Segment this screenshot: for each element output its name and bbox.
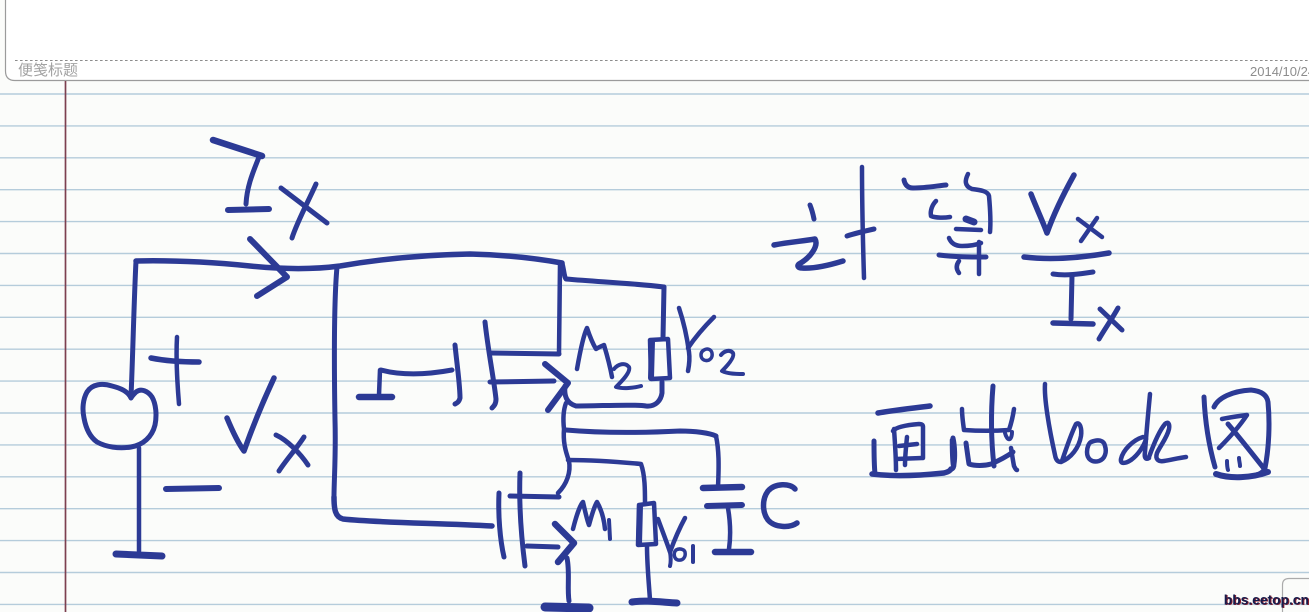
svg-text:便笺标题: 便笺标题 [18,62,78,79]
svg-text:bbs.eetop.cn: bbs.eetop.cn [1224,593,1309,608]
svg-text:2014/10/24: 2014/10/24 [1250,64,1309,79]
